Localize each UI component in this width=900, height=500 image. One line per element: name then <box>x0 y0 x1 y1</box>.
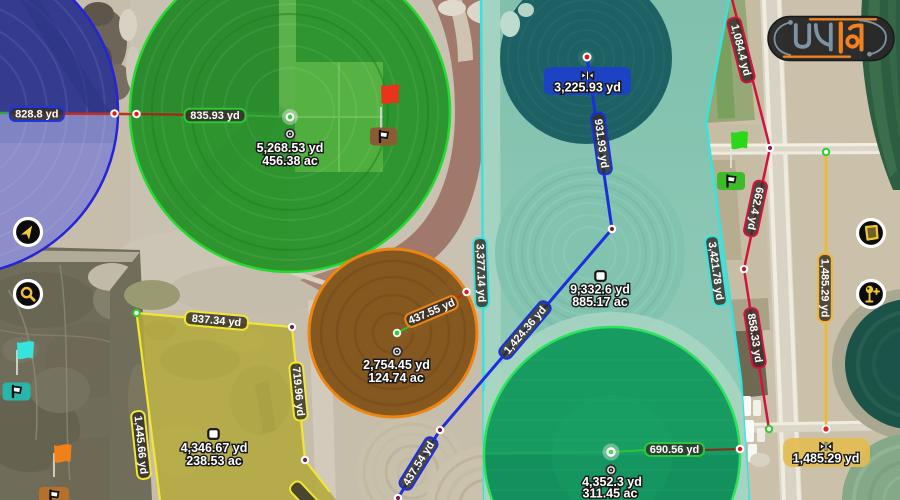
svg-text:124.74 ac: 124.74 ac <box>368 371 424 385</box>
svg-text:5,268.53 yd: 5,268.53 yd <box>257 141 324 155</box>
svg-text:1,485.29 yd: 1,485.29 yd <box>819 259 831 318</box>
svg-text:2,754.45 yd: 2,754.45 yd <box>363 358 430 372</box>
svg-text:835.93 yd: 835.93 yd <box>190 110 240 122</box>
svg-text:311.45 ac: 311.45 ac <box>583 487 638 500</box>
svg-text:456.38 ac: 456.38 ac <box>262 154 318 168</box>
svg-text:828.8 yd: 828.8 yd <box>15 109 58 121</box>
svg-text:4,346.67 yd: 4,346.67 yd <box>181 441 248 455</box>
svg-text:3,225.93 yd: 3,225.93 yd <box>554 81 621 95</box>
svg-text:690.56 yd: 690.56 yd <box>650 444 700 456</box>
svg-text:1,485.29 yd: 1,485.29 yd <box>793 452 860 466</box>
svg-text:238.53 ac: 238.53 ac <box>186 454 242 468</box>
svg-text:3,377.14 yd: 3,377.14 yd <box>473 243 487 302</box>
svg-text:885.17 ac: 885.17 ac <box>572 295 628 309</box>
